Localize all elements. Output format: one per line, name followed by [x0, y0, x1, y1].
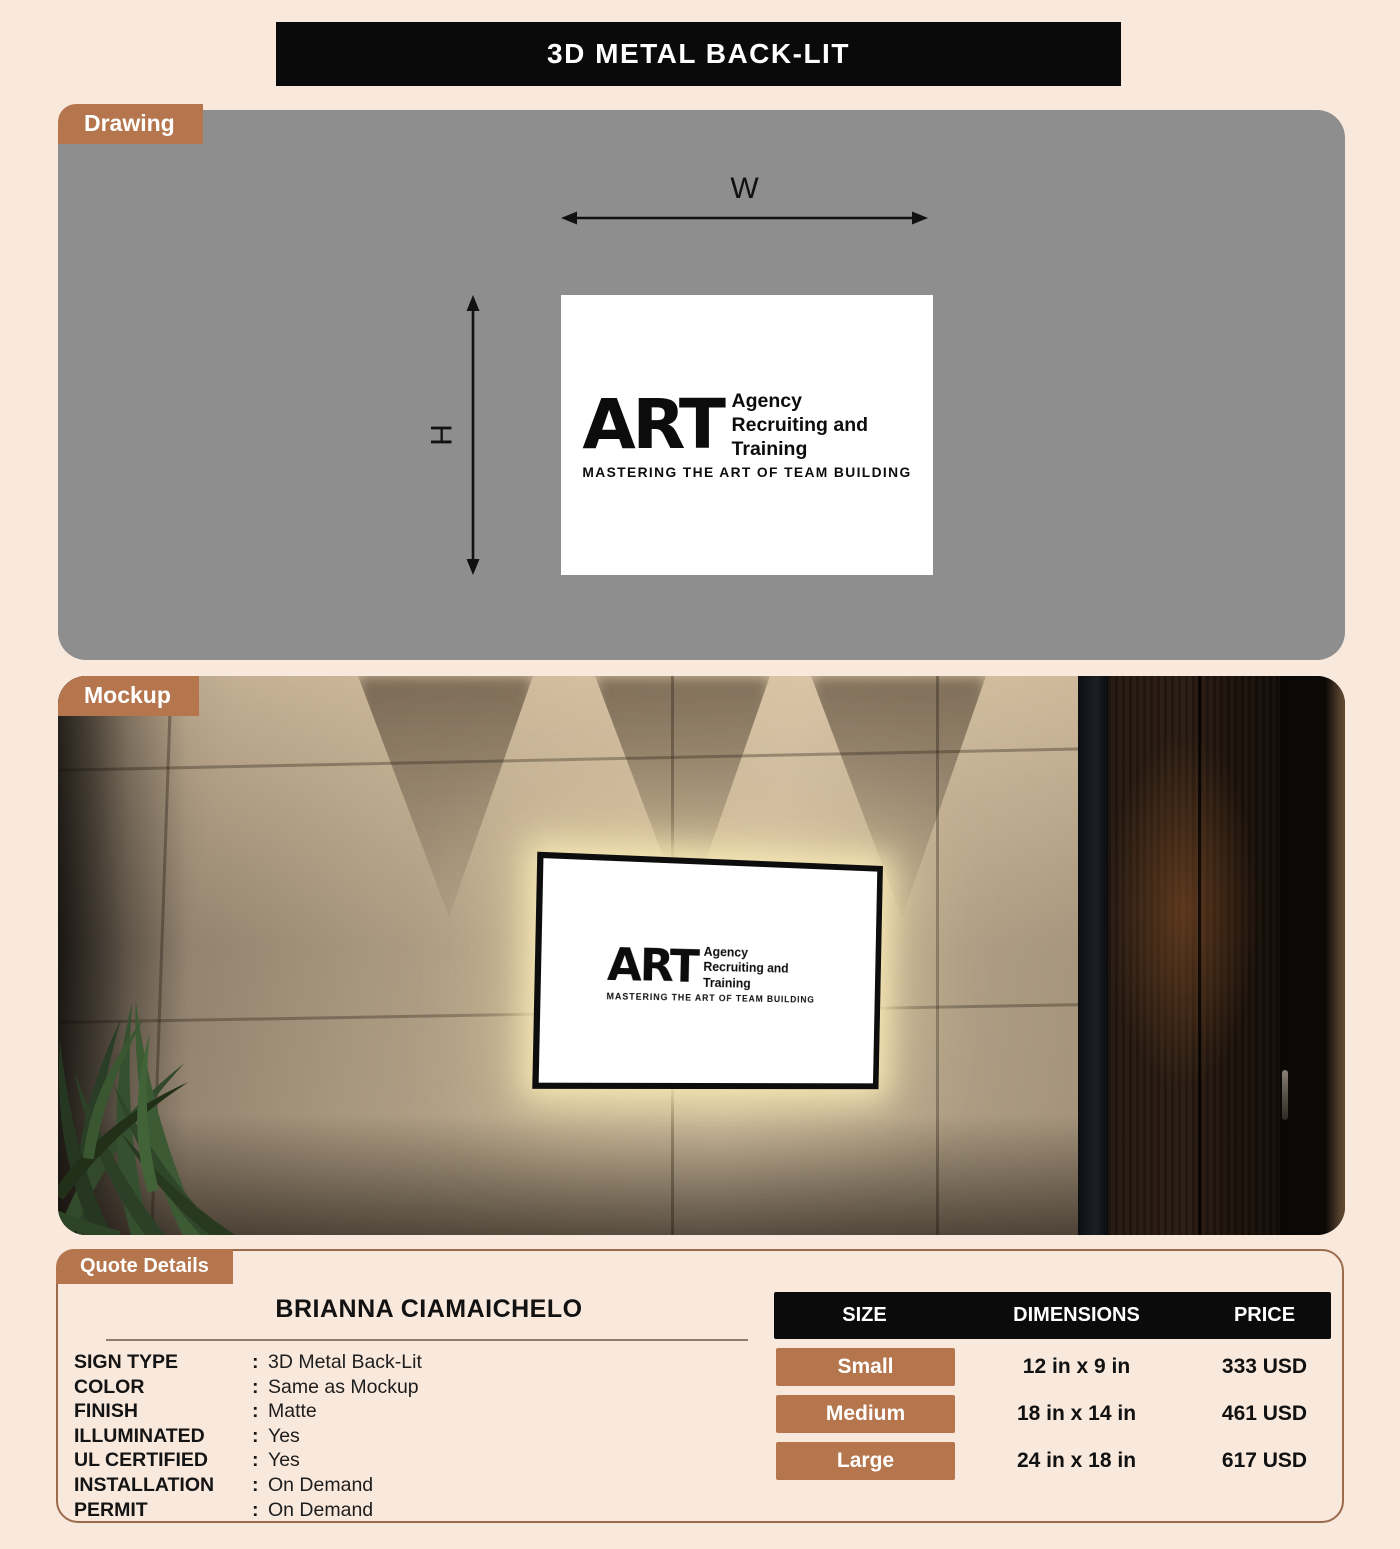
logo-acronym: ART — [582, 396, 722, 455]
spec-row: PERMIT : On Demand — [74, 1498, 764, 1523]
divider — [106, 1339, 748, 1341]
art-logo: ART Agency Recruiting and Training MASTE… — [582, 390, 911, 480]
spec-label: ILLUMINATED — [74, 1424, 252, 1449]
spec-label: UL CERTIFIED — [74, 1448, 252, 1473]
spec-label: INSTALLATION — [74, 1473, 252, 1498]
sign-proof: ART Agency Recruiting and Training MASTE… — [561, 295, 933, 575]
price-cell: 461 USD — [1198, 1402, 1331, 1426]
spec-value: Yes — [268, 1448, 300, 1473]
page-title-bar: 3D METAL BACK-LIT — [276, 22, 1121, 86]
spec-value: Yes — [268, 1424, 300, 1449]
height-dimension-label: H — [423, 405, 457, 465]
header-size: SIZE — [774, 1304, 955, 1327]
price-cell: 617 USD — [1198, 1449, 1331, 1473]
mockup-tab: Mockup — [58, 676, 199, 716]
header-price: PRICE — [1198, 1304, 1331, 1327]
page-title: 3D METAL BACK-LIT — [547, 38, 850, 70]
spec-value: On Demand — [268, 1473, 373, 1498]
spec-value: Same as Mockup — [268, 1375, 419, 1400]
width-arrow-icon — [561, 208, 928, 228]
width-dimension-label: W — [561, 172, 928, 206]
plant-leaves — [58, 943, 378, 1235]
spec-value: On Demand — [268, 1498, 373, 1523]
art-logo: ART Agency Recruiting and Training MASTE… — [606, 942, 815, 1004]
quote-tab: Quote Details — [56, 1249, 233, 1284]
door-frame — [1078, 676, 1108, 1235]
logo-acronym: ART — [607, 946, 698, 986]
spec-value: 3D Metal Back-Lit — [268, 1350, 422, 1375]
spec-row: COLOR : Same as Mockup — [74, 1375, 764, 1400]
dimension-cell: 18 in x 14 in — [955, 1402, 1198, 1426]
door-seam — [1198, 676, 1201, 1235]
logo-name: Agency Recruiting and Training — [703, 945, 789, 992]
spec-row: FINISH : Matte — [74, 1399, 764, 1424]
spec-label: COLOR — [74, 1375, 252, 1400]
dimension-cell: 12 in x 9 in — [955, 1355, 1198, 1379]
pricing-table-header: SIZE DIMENSIONS PRICE — [774, 1292, 1331, 1339]
door-edge — [1280, 676, 1345, 1235]
size-button-large[interactable]: Large — [776, 1442, 955, 1480]
spec-row: UL CERTIFIED : Yes — [74, 1448, 764, 1473]
spec-label: SIGN TYPE — [74, 1350, 252, 1375]
backlit-sign-mockup: ART Agency Recruiting and Training MASTE… — [532, 852, 883, 1089]
size-button-small[interactable]: Small — [776, 1348, 955, 1386]
spec-value: Matte — [268, 1399, 317, 1424]
logo-tagline: MASTERING THE ART OF TEAM BUILDING — [606, 991, 814, 1005]
spec-label: FINISH — [74, 1399, 252, 1424]
header-dimensions: DIMENSIONS — [955, 1304, 1198, 1327]
spec-label: PERMIT — [74, 1498, 252, 1523]
drawing-panel: Drawing W H ART Agency Recruiting and Tr… — [58, 110, 1345, 660]
logo-tagline: MASTERING THE ART OF TEAM BUILDING — [582, 465, 911, 480]
table-row: Medium 18 in x 14 in 461 USD — [774, 1395, 1331, 1433]
dimension-cell: 24 in x 18 in — [955, 1449, 1198, 1473]
quote-panel: Quote Details BRIANNA CIAMAICHELO SIGN T… — [56, 1249, 1344, 1523]
spec-list: SIGN TYPE : 3D Metal Back-Lit COLOR : Sa… — [74, 1350, 764, 1522]
logo-name: Agency Recruiting and Training — [732, 390, 869, 461]
spec-row: INSTALLATION : On Demand — [74, 1473, 764, 1498]
customer-name: BRIANNA CIAMAICHELO — [108, 1295, 750, 1324]
wood-door — [1108, 676, 1280, 1235]
spec-row: SIGN TYPE : 3D Metal Back-Lit — [74, 1350, 764, 1375]
size-button-medium[interactable]: Medium — [776, 1395, 955, 1433]
table-row: Small 12 in x 9 in 333 USD — [774, 1348, 1331, 1386]
door-handle — [1282, 1070, 1288, 1120]
pricing-table: SIZE DIMENSIONS PRICE Small 12 in x 9 in… — [774, 1292, 1331, 1480]
mockup-panel: ART Agency Recruiting and Training MASTE… — [58, 676, 1345, 1235]
spec-row: ILLUMINATED : Yes — [74, 1424, 764, 1449]
price-cell: 333 USD — [1198, 1355, 1331, 1379]
height-arrow-icon — [463, 295, 483, 575]
drawing-tab: Drawing — [58, 104, 203, 144]
table-row: Large 24 in x 18 in 617 USD — [774, 1442, 1331, 1480]
